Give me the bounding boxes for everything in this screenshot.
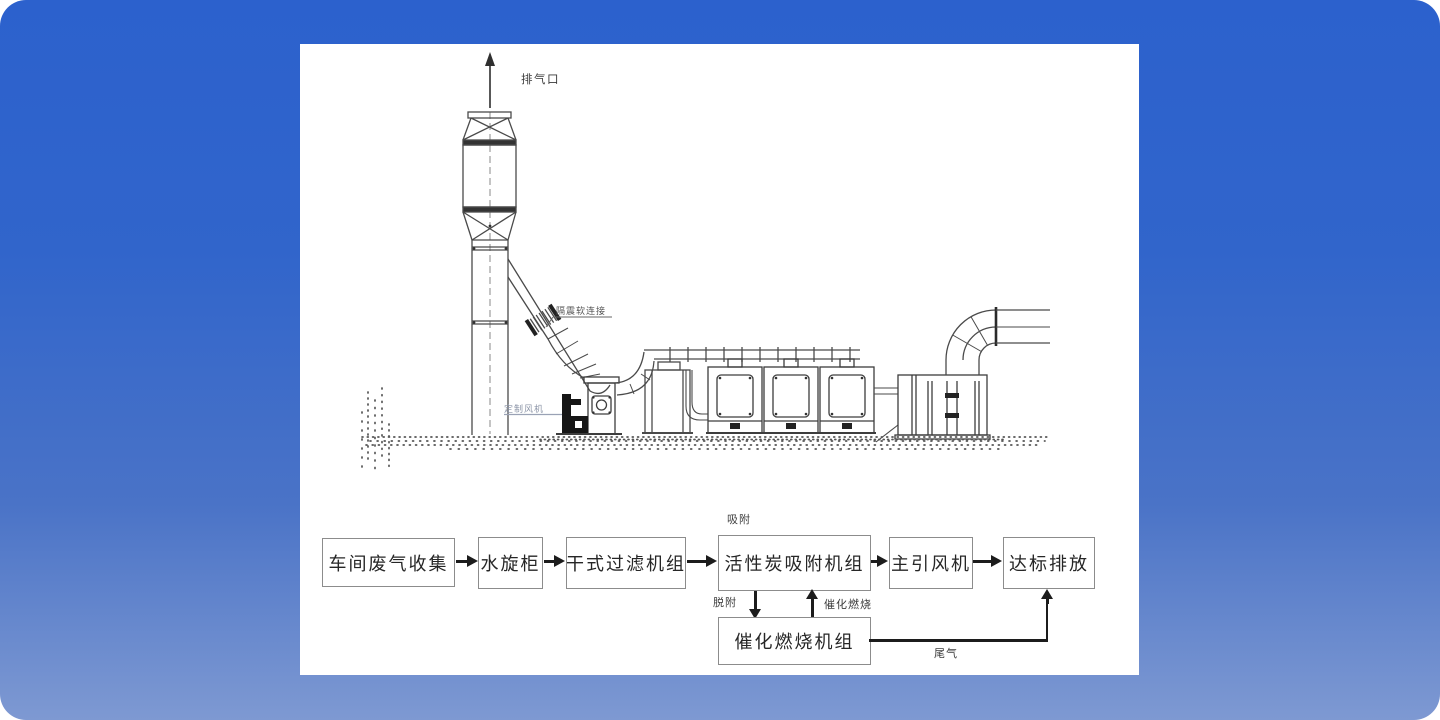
overhead-duct: [644, 347, 860, 362]
stack-silencer: [463, 112, 516, 240]
riser-duct: [615, 352, 654, 395]
flow-box-dry-filter-unit: 干式过滤机组: [566, 537, 686, 589]
desorption-arrow: [754, 591, 757, 610]
exhaust-outlet-label: 排气口: [521, 72, 560, 86]
flow-arrow-5: [973, 560, 992, 563]
adsorption-unit-2: [762, 359, 820, 433]
screenshot-stage: 排气口 隔震软: [0, 0, 1440, 720]
catalytic-combustion-note: 催化燃烧: [824, 596, 872, 612]
flex-connection-label: 隔震软连接: [556, 305, 606, 317]
flow-box-water-spray-cabinet: 水旋柜: [478, 537, 543, 589]
custom-fan-label: 定制风机: [504, 403, 544, 415]
adsorption-note: 吸附: [727, 511, 751, 527]
tail-gas-line-vertical: [1046, 598, 1049, 641]
flow-arrow-2: [544, 560, 555, 563]
flow-box-activated-carbon-unit: 活性炭吸附机组: [718, 535, 871, 591]
exhaust-stack: [472, 52, 508, 435]
adsorption-unit-3: [818, 359, 876, 433]
flex-duct: [508, 259, 612, 393]
diagram-panel: 排气口 隔震软: [300, 44, 1139, 675]
flow-box-catalytic-combustion-unit: 催化燃烧机组: [718, 617, 871, 665]
up-arrow-icon: [485, 52, 495, 66]
desorption-note: 脱附: [713, 594, 737, 610]
flow-arrow-1: [456, 560, 468, 563]
buffer-tank: [642, 362, 708, 433]
tail-gas-note: 尾气: [934, 645, 958, 661]
flow-box-compliant-discharge: 达标排放: [1003, 537, 1095, 589]
catalytic-return-arrow: [811, 598, 814, 617]
flow-arrow-3: [687, 560, 707, 563]
catalytic-unit: [895, 375, 990, 439]
flow-arrow-4: [871, 560, 878, 563]
tail-gas-line-horizontal: [869, 639, 1048, 642]
outlet-elbow: [946, 307, 1050, 375]
adsorption-unit-1: [706, 359, 764, 433]
flow-box-main-fan: 主引风机: [889, 537, 973, 589]
tail-gas-arrowhead: [1046, 598, 1049, 604]
unit-connector: [874, 388, 898, 442]
ground-stipple: [362, 388, 1048, 474]
flow-box-workshop-gas-collection: 车间废气收集: [322, 538, 455, 587]
